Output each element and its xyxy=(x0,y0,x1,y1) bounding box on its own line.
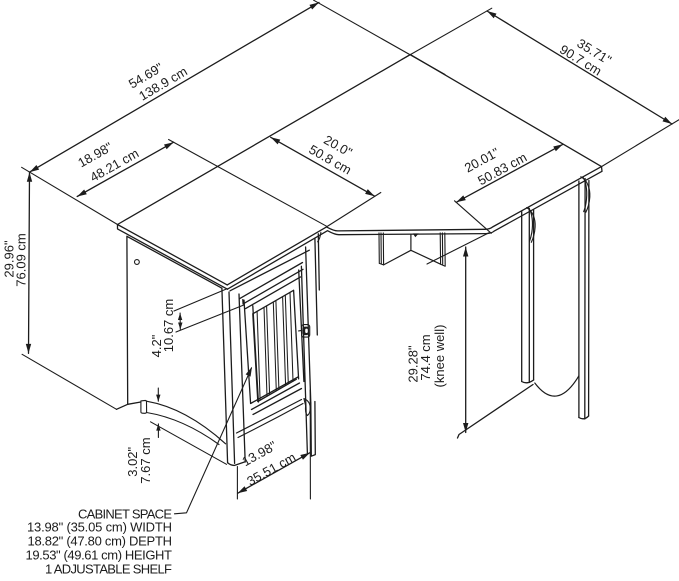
svg-text:19.53" (49.61 cm) HEIGHT: 19.53" (49.61 cm) HEIGHT xyxy=(26,548,173,563)
svg-text:7.67 cm: 7.67 cm xyxy=(138,437,153,483)
svg-text:(knee well): (knee well) xyxy=(432,325,447,388)
svg-text:1 ADJUSTABLE SHELF: 1 ADJUSTABLE SHELF xyxy=(45,562,172,577)
svg-text:10.67 cm: 10.67 cm xyxy=(161,299,176,352)
svg-text:74.4 cm: 74.4 cm xyxy=(418,334,433,380)
svg-text:18.82" (47.80 cm) DEPTH: 18.82" (47.80 cm) DEPTH xyxy=(28,534,173,549)
svg-text:76.09 cm: 76.09 cm xyxy=(14,233,29,286)
svg-text:13.98" (35.05 cm) WIDTH: 13.98" (35.05 cm) WIDTH xyxy=(27,520,172,535)
